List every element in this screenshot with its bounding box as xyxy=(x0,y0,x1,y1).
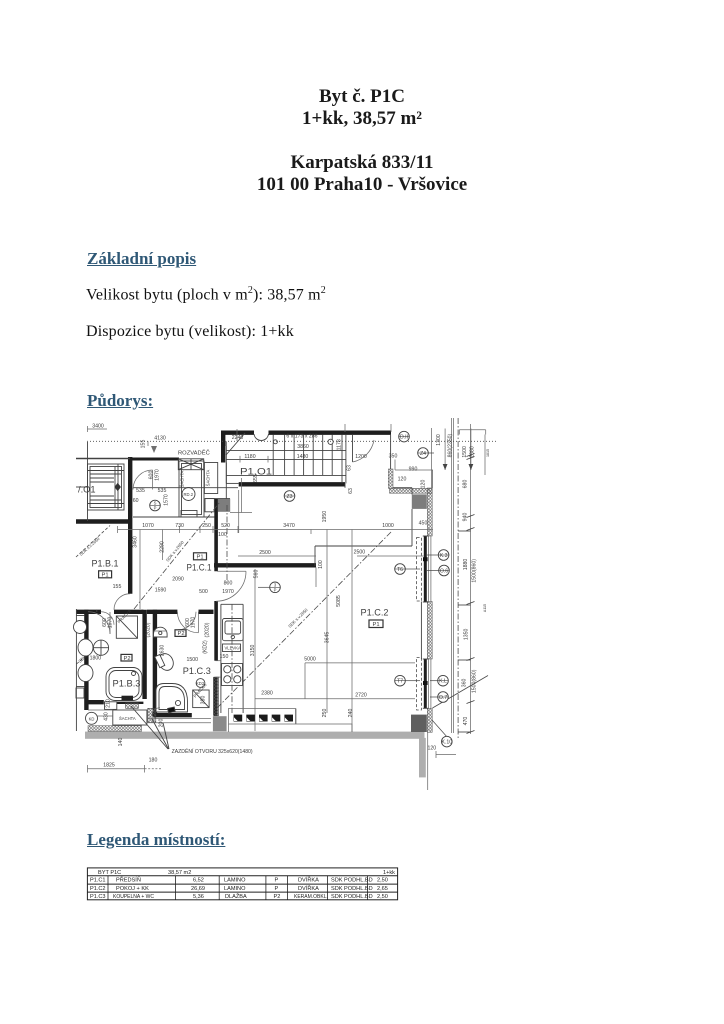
svg-text:VLEVKA: VLEVKA xyxy=(225,646,242,651)
svg-text:2,50: 2,50 xyxy=(377,894,388,900)
svg-text:2720: 2720 xyxy=(355,693,367,699)
svg-text:(KD2): (KD2) xyxy=(202,640,208,654)
svg-text:100: 100 xyxy=(318,560,324,569)
svg-text:520: 520 xyxy=(221,523,230,529)
svg-text:1800: 1800 xyxy=(90,656,102,662)
svg-text:3460: 3460 xyxy=(132,536,138,548)
svg-text:SDK PODHL.BD: SDK PODHL.BD xyxy=(331,886,373,892)
svg-text:535: 535 xyxy=(158,488,167,494)
svg-text:940: 940 xyxy=(462,513,468,522)
svg-text:470: 470 xyxy=(463,717,469,726)
svg-text:KERAM.OBKL.: KERAM.OBKL. xyxy=(294,894,328,900)
svg-text:SDK PODHL.BD: SDK PODHL.BD xyxy=(331,878,373,884)
svg-text:5,36: 5,36 xyxy=(193,894,204,900)
svg-text:O.7: O.7 xyxy=(439,695,447,701)
svg-text:2380: 2380 xyxy=(470,446,476,458)
svg-text:D.II: D.II xyxy=(400,435,408,441)
svg-text:990: 990 xyxy=(409,466,418,472)
svg-text:1300: 1300 xyxy=(436,434,442,446)
svg-text:Z4: Z4 xyxy=(420,451,426,457)
svg-text:350: 350 xyxy=(389,453,398,459)
svg-text:5000: 5000 xyxy=(304,656,316,662)
svg-text:ROZVADĚČ: ROZVADĚČ xyxy=(178,449,210,457)
svg-text:P1.C.3: P1.C.3 xyxy=(183,666,211,676)
svg-text:PŘEDSÍŇ: PŘEDSÍŇ xyxy=(116,876,141,884)
svg-text:3860: 3860 xyxy=(297,444,309,450)
svg-text:560: 560 xyxy=(253,570,259,579)
svg-text:120: 120 xyxy=(427,746,436,752)
svg-text:150: 150 xyxy=(220,654,229,660)
svg-text:3645: 3645 xyxy=(324,632,330,644)
svg-text:60: 60 xyxy=(133,498,139,504)
svg-text:/.O1: /.O1 xyxy=(78,485,96,495)
svg-text:1500: 1500 xyxy=(187,657,199,663)
svg-text:SDK s.v.2650: SDK s.v.2650 xyxy=(165,539,185,562)
svg-text:P2: P2 xyxy=(178,631,185,637)
svg-text:LAMINO: LAMINO xyxy=(224,886,246,892)
svg-text:P2: P2 xyxy=(274,894,281,900)
svg-text:2500: 2500 xyxy=(259,550,271,556)
svg-text:DVÍŘKA: DVÍŘKA xyxy=(298,876,319,884)
svg-text:BYT P1C: BYT P1C xyxy=(98,870,121,876)
svg-text:38,57 m2: 38,57 m2 xyxy=(168,870,191,876)
svg-text:1970: 1970 xyxy=(154,469,160,481)
svg-text:1350: 1350 xyxy=(463,629,469,641)
svg-text:120: 120 xyxy=(398,477,407,483)
svg-text:P1: P1 xyxy=(197,554,204,560)
svg-text:P1.C3: P1.C3 xyxy=(90,894,106,900)
svg-text:RD.2: RD.2 xyxy=(184,492,194,497)
svg-text:P1.C1: P1.C1 xyxy=(90,878,106,884)
svg-text:P1: P1 xyxy=(373,622,380,628)
svg-text:KD2: KD2 xyxy=(196,681,205,686)
svg-text:6 x 173 x 286: 6 x 173 x 286 xyxy=(286,434,317,440)
svg-text:1500(860): 1500(860) xyxy=(471,559,477,583)
svg-text:1500(860): 1500(860) xyxy=(471,669,477,693)
svg-text:K.3: K.3 xyxy=(440,553,448,559)
svg-text:(2020): (2020) xyxy=(204,622,210,637)
svg-text:1+kk: 1+kk xyxy=(383,870,395,876)
svg-text:T6: T6 xyxy=(397,567,403,573)
svg-text:Z3: Z3 xyxy=(286,494,292,500)
svg-text:26,69: 26,69 xyxy=(191,886,205,892)
svg-text:6,52: 6,52 xyxy=(193,878,204,884)
svg-text:KD: KD xyxy=(89,716,95,721)
svg-text:860(2350): 860(2350) xyxy=(447,434,453,458)
svg-text:250: 250 xyxy=(322,709,328,718)
svg-text:1000: 1000 xyxy=(382,523,394,529)
svg-text:P1.C.1: P1.C.1 xyxy=(187,563,212,573)
svg-text:155: 155 xyxy=(140,440,146,449)
svg-text:1500: 1500 xyxy=(462,446,468,458)
svg-text:1070: 1070 xyxy=(142,523,154,529)
svg-text:1815: 1815 xyxy=(486,449,490,457)
svg-text:1180: 1180 xyxy=(244,454,255,460)
svg-text:P: P xyxy=(275,878,279,884)
svg-text:240: 240 xyxy=(348,709,354,718)
svg-text:P1: P1 xyxy=(102,572,109,578)
svg-text:120: 120 xyxy=(420,480,426,489)
svg-text:1970: 1970 xyxy=(222,589,234,595)
svg-text:3400: 3400 xyxy=(92,424,104,430)
svg-text:KOUPELNA + WC: KOUPELNA + WC xyxy=(113,894,154,900)
svg-text:200: 200 xyxy=(158,719,164,728)
svg-text:A115: A115 xyxy=(483,604,487,612)
svg-text:POKOJ + KK: POKOJ + KK xyxy=(116,886,149,892)
svg-text:2500: 2500 xyxy=(354,550,366,556)
svg-text:ŠACHTA: ŠACHTA xyxy=(119,716,136,721)
svg-text:1590: 1590 xyxy=(155,588,167,594)
svg-text:1570: 1570 xyxy=(163,494,169,506)
svg-text:2380: 2380 xyxy=(261,691,273,697)
svg-text:5085: 5085 xyxy=(336,595,342,607)
svg-text:140: 140 xyxy=(118,738,124,747)
svg-text:1970: 1970 xyxy=(191,617,197,629)
svg-text:1200: 1200 xyxy=(355,454,367,460)
svg-text:SDK PODHL.BD: SDK PODHL.BD xyxy=(331,894,373,900)
svg-text:P: P xyxy=(154,506,157,511)
svg-text:63: 63 xyxy=(348,488,354,494)
svg-text:ŠACHTA: ŠACHTA xyxy=(180,470,185,487)
svg-text:730: 730 xyxy=(175,523,184,529)
svg-text:DVÍŘKA: DVÍŘKA xyxy=(298,884,319,892)
svg-text:4130: 4130 xyxy=(154,436,166,442)
svg-text:ZAZDĚNÍ OTVORU 325x620(1480): ZAZDĚNÍ OTVORU 325x620(1480) xyxy=(172,747,253,755)
svg-text:210: 210 xyxy=(105,699,111,708)
svg-text:P: P xyxy=(275,886,279,892)
svg-text:655: 655 xyxy=(253,474,259,483)
svg-text:250: 250 xyxy=(202,523,211,529)
svg-text:2630: 2630 xyxy=(159,645,165,657)
svg-text:155: 155 xyxy=(113,584,122,590)
svg-text:(2020): (2020) xyxy=(145,622,151,637)
svg-text:3150: 3150 xyxy=(250,645,256,657)
svg-text:1825: 1825 xyxy=(103,763,115,769)
svg-text:P: P xyxy=(274,587,277,592)
svg-text:ŠACHTA: ŠACHTA xyxy=(206,469,211,486)
svg-text:450: 450 xyxy=(419,521,428,527)
svg-text:2290: 2290 xyxy=(159,541,165,553)
svg-text:P2: P2 xyxy=(124,656,131,662)
svg-text:1178: 1178 xyxy=(337,439,343,450)
svg-text:180: 180 xyxy=(149,758,158,764)
svg-text:1970: 1970 xyxy=(108,617,114,629)
svg-text:P1.B.3: P1.B.3 xyxy=(113,679,141,689)
svg-text:3470: 3470 xyxy=(283,523,295,529)
svg-text:2,50: 2,50 xyxy=(377,878,388,884)
svg-text:LAMINO: LAMINO xyxy=(224,878,246,884)
svg-text:360: 360 xyxy=(462,678,468,687)
svg-text:63: 63 xyxy=(347,465,353,471)
svg-text:K.L: K.L xyxy=(439,679,447,685)
svg-text:680: 680 xyxy=(462,480,468,489)
svg-text:1880: 1880 xyxy=(463,559,469,571)
svg-text:SDK s.v.2650: SDK s.v.2650 xyxy=(78,536,101,557)
svg-text:100: 100 xyxy=(218,532,227,538)
svg-text:535: 535 xyxy=(136,488,145,494)
svg-text:2090: 2090 xyxy=(172,577,184,583)
svg-text:800: 800 xyxy=(224,581,233,587)
svg-text:P1.C.2: P1.C.2 xyxy=(361,608,389,618)
svg-text:430: 430 xyxy=(104,712,110,721)
svg-text:2,65: 2,65 xyxy=(377,886,388,892)
svg-text:P1.C2: P1.C2 xyxy=(90,886,106,892)
svg-text:K.10: K.10 xyxy=(441,740,452,746)
svg-text:1950: 1950 xyxy=(322,511,328,523)
svg-text:2240: 2240 xyxy=(232,435,244,441)
svg-text:1480: 1480 xyxy=(297,454,309,460)
svg-text:380: 380 xyxy=(200,696,206,705)
svg-text:T7: T7 xyxy=(397,679,403,685)
svg-text:P1.B.1: P1.B.1 xyxy=(92,559,119,569)
svg-text:500: 500 xyxy=(199,589,208,595)
svg-text:DLAŽBA: DLAŽBA xyxy=(225,892,247,900)
svg-text:O.6: O.6 xyxy=(440,569,448,575)
